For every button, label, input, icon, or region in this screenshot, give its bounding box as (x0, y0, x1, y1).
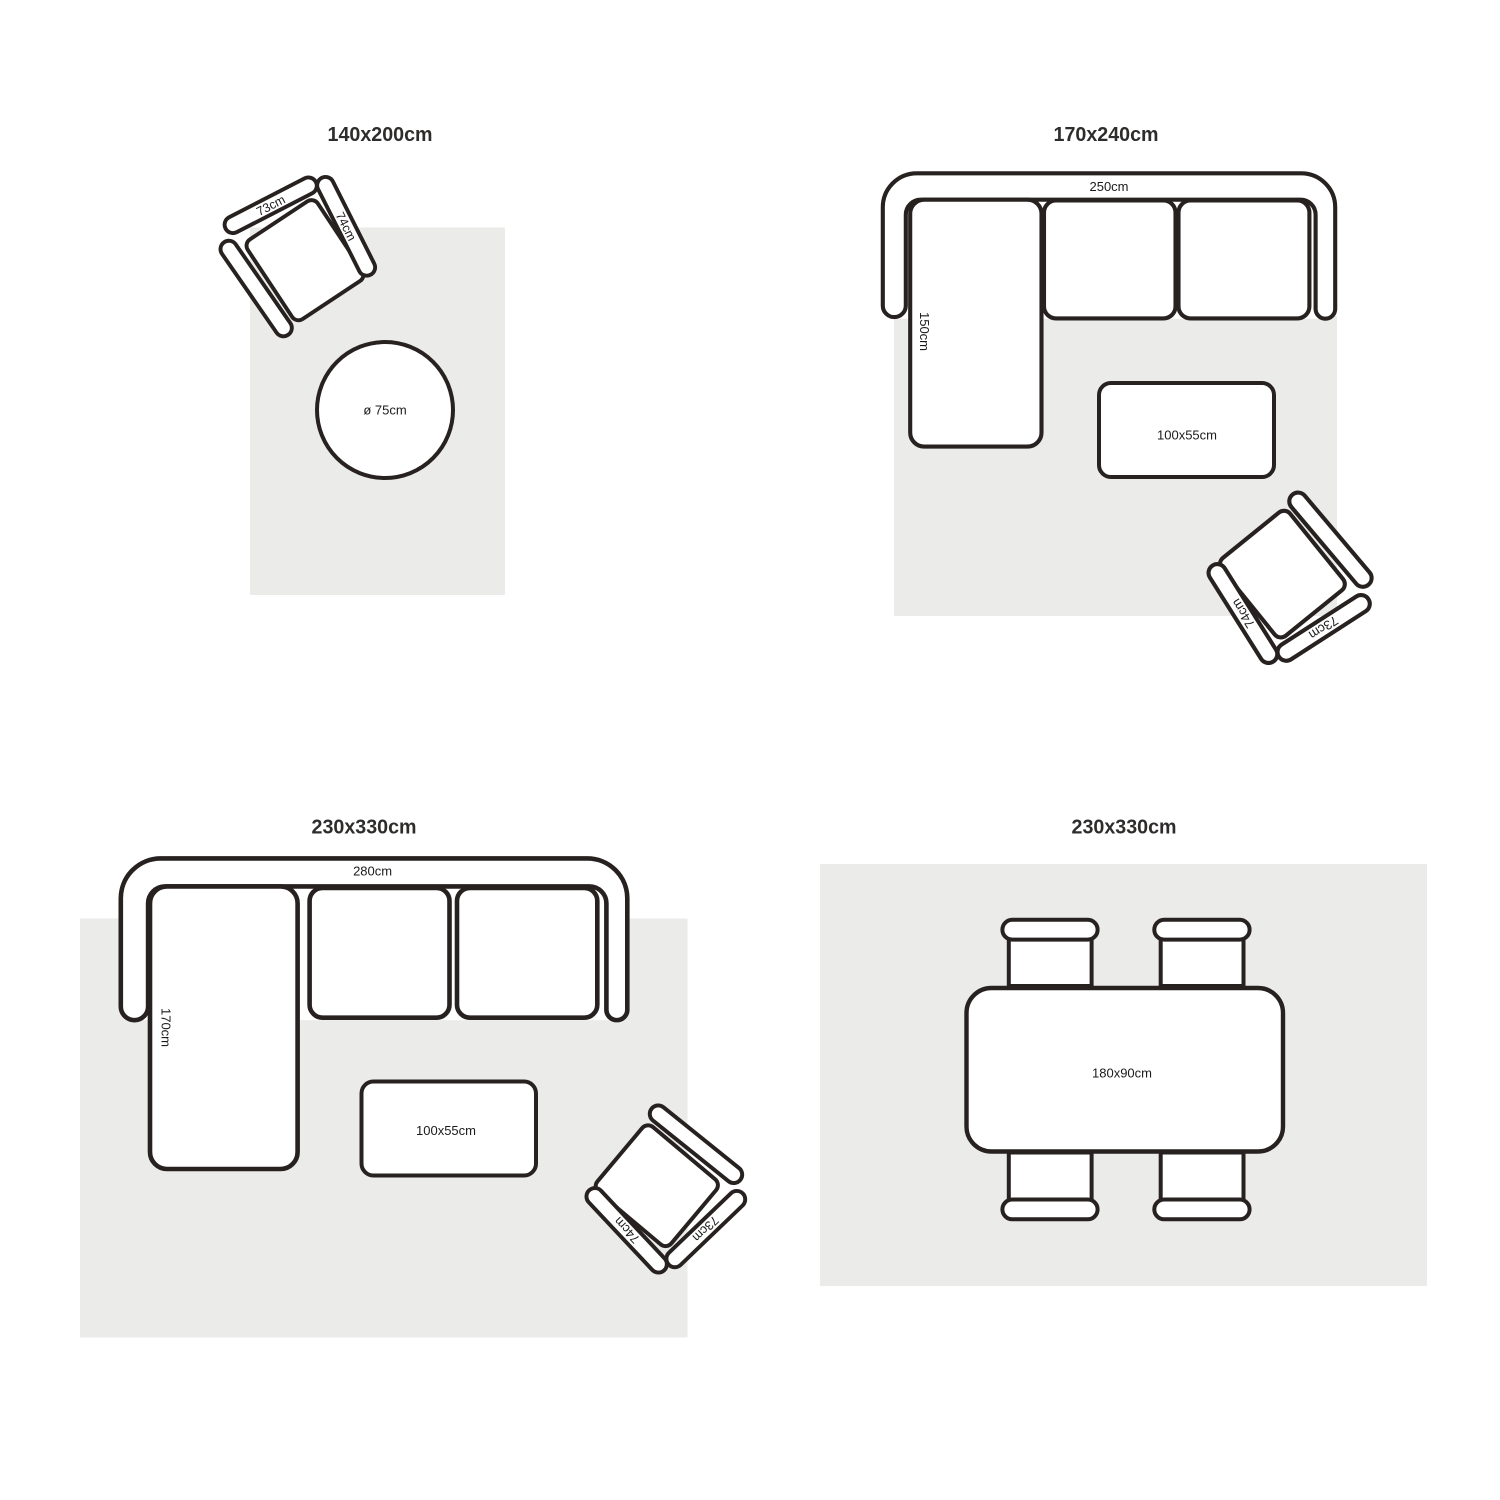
svg-text:140x200cm: 140x200cm (328, 124, 433, 146)
svg-text:250cm: 250cm (1089, 179, 1128, 194)
svg-text:100x55cm: 100x55cm (1157, 428, 1217, 443)
svg-text:170x240cm: 170x240cm (1054, 124, 1159, 146)
svg-text:230x330cm: 230x330cm (1072, 817, 1177, 839)
svg-text:180x90cm: 180x90cm (1092, 1066, 1152, 1081)
svg-text:230x330cm: 230x330cm (312, 817, 417, 839)
svg-text:280cm: 280cm (353, 864, 392, 879)
svg-text:100x55cm: 100x55cm (416, 1123, 476, 1138)
svg-text:170cm: 170cm (158, 1008, 173, 1047)
svg-text:150cm: 150cm (917, 312, 932, 351)
svg-text:ø 75cm: ø 75cm (363, 403, 406, 418)
